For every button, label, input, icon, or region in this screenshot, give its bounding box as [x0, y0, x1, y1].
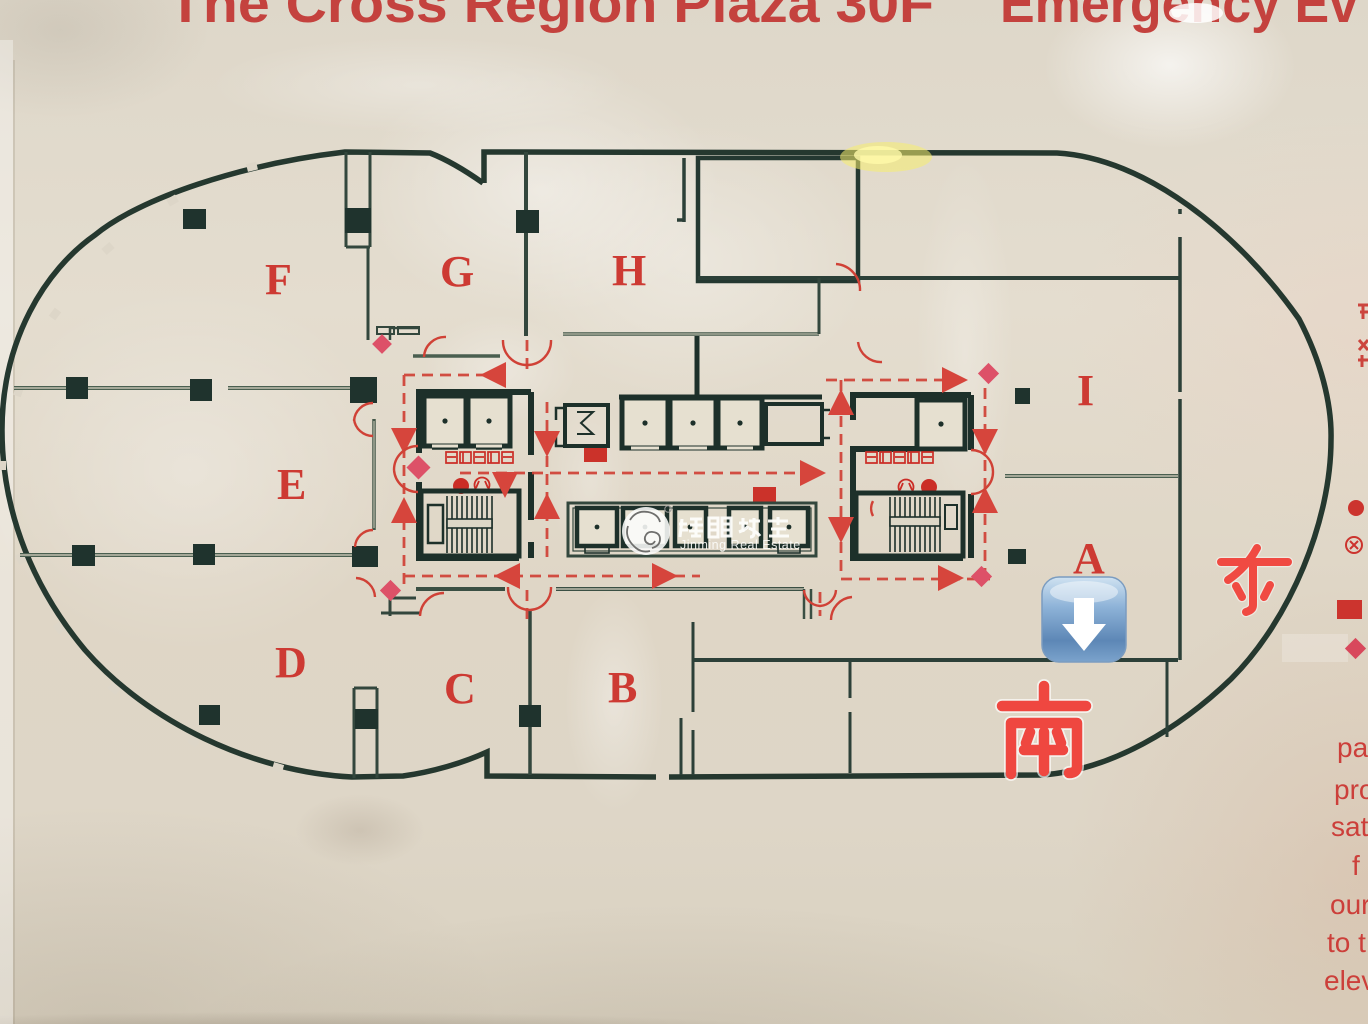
svg-text:to t: to t	[1327, 927, 1366, 958]
svg-text:E: E	[277, 460, 306, 509]
svg-text:I: I	[1077, 366, 1094, 415]
svg-text:pa: pa	[1337, 732, 1368, 763]
svg-text:F: F	[265, 255, 292, 304]
svg-text:pro: pro	[1334, 774, 1368, 805]
svg-text:elev: elev	[1324, 965, 1368, 996]
svg-text:sat: sat	[1331, 811, 1368, 842]
svg-text:our: our	[1330, 889, 1368, 920]
svg-text:D: D	[275, 638, 307, 687]
svg-text:B: B	[608, 663, 637, 712]
svg-text:A: A	[1073, 534, 1105, 583]
svg-text:f: f	[1352, 850, 1360, 881]
svg-text:Jinming Real Estate: Jinming Real Estate	[680, 538, 801, 552]
svg-text:The Cross Region Plaza 30F: The Cross Region Plaza 30F	[168, 0, 934, 34]
svg-text:G: G	[440, 247, 474, 296]
svg-text:C: C	[444, 664, 476, 713]
svg-text:H: H	[612, 246, 646, 295]
